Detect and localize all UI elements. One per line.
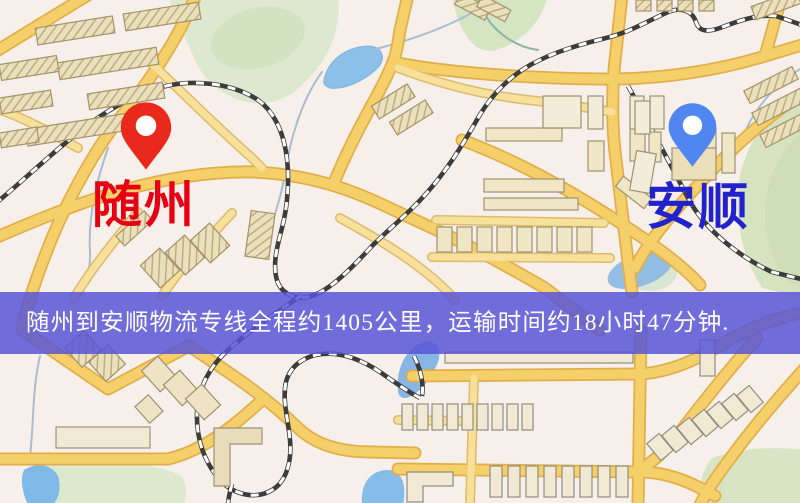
anshun-location-pin-icon	[666, 101, 719, 169]
route-map-image: 随州 安顺 随州到安顺物流专线全程约1405公里，运输时间约18小时47分钟.	[0, 0, 800, 503]
route-info-banner: 随州到安顺物流专线全程约1405公里，运输时间约18小时47分钟.	[0, 292, 800, 354]
suizhou-location-pin-icon	[118, 100, 174, 172]
map-canvas	[0, 0, 800, 503]
suizhou-label: 随州	[92, 180, 196, 230]
anshun-label: 安顺	[646, 182, 750, 232]
banner-text: 随州到安顺物流专线全程约1405公里，运输时间约18小时47分钟.	[26, 292, 729, 354]
